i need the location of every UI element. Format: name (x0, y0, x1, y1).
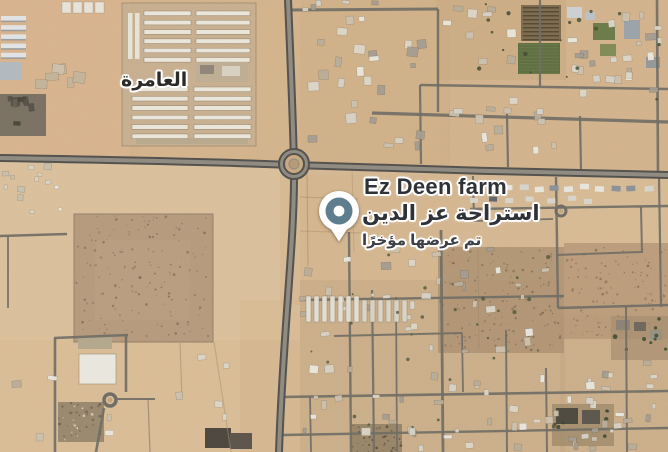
map-viewport[interactable]: العامرة Ez Deen farm استراحة عز الدين تم… (0, 0, 668, 452)
poi-name-en[interactable]: Ez Deen farm (364, 176, 507, 198)
poi-status-recently-viewed: تم عرضها مؤخرًا (362, 233, 481, 248)
place-label-alamera: العامرة (121, 71, 187, 90)
pin-center-dot (334, 206, 345, 217)
place-label-alamera-text: العامرة (121, 70, 187, 91)
pin-icon (315, 189, 363, 243)
poi-name-ar[interactable]: استراحة عز الدين (362, 203, 540, 224)
map-pin-recently-viewed[interactable] (315, 189, 363, 243)
